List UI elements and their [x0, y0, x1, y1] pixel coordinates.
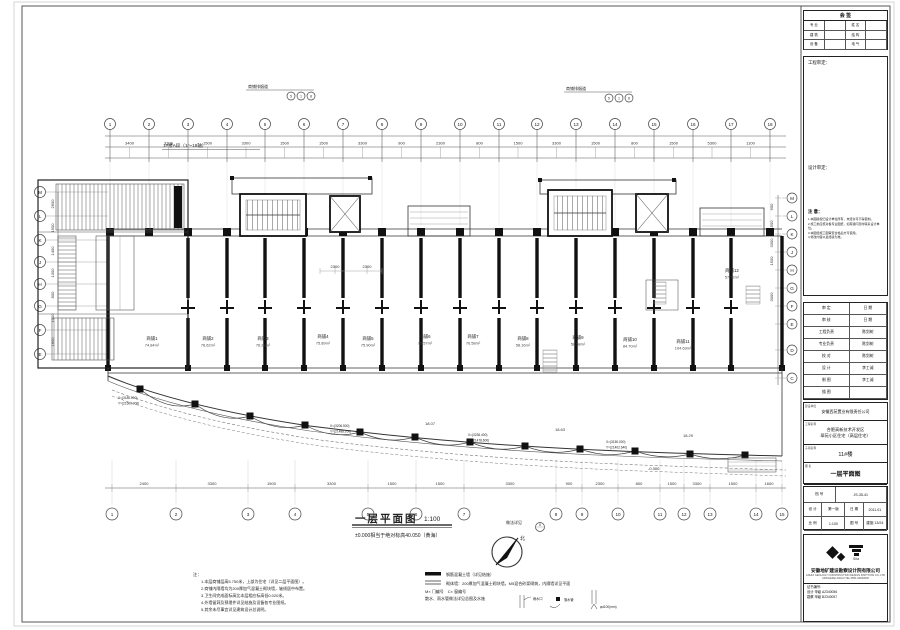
dim: 2300	[436, 141, 446, 146]
vent-label-right: 商铺排烟道	[566, 85, 586, 91]
role: 专业负责	[804, 339, 850, 350]
personnel-row: 专业负责陈剑树	[804, 339, 887, 351]
dim: 1500	[669, 141, 679, 146]
datum-note: ±0.000相当于绝对标高40.050（黄海）	[355, 532, 441, 539]
axis-label: 13	[707, 512, 713, 517]
vent-ref: 1	[300, 94, 302, 98]
number-table: 档 号JS-35-41 设 计第一版日 期2011.01 比 例1:100图 号…	[803, 486, 888, 530]
coord-y: Y=(21402.640)	[606, 446, 627, 450]
axis-label: 10	[615, 512, 621, 517]
vent-ref: 1	[618, 96, 620, 100]
dim: 3300	[242, 141, 252, 146]
axis-label: 2	[175, 512, 178, 517]
axis-label: 4	[294, 512, 297, 517]
axis-label: 12	[681, 512, 687, 517]
personnel-row: 校 对陈剑树	[804, 351, 887, 363]
role: 制 图	[804, 375, 850, 386]
scale-value: 1:100	[822, 517, 845, 530]
axis-label: J	[39, 260, 41, 265]
room-area: 76.58m²	[466, 341, 481, 346]
notice-title: 注 意：	[808, 209, 884, 215]
axis-label: 8	[555, 512, 558, 517]
drawing-sheet: 1 2 3 4 5 6 7 8 9 10 11 12 13 14 15 16 1…	[0, 0, 900, 630]
dim: 18.63	[555, 427, 566, 432]
sign-cell: 结 构	[846, 31, 867, 41]
approve-label-2: 设计审定：	[808, 165, 830, 171]
room-area: 58.58m²	[571, 342, 586, 347]
sign-table-title: 会 签	[804, 11, 887, 21]
axis-label: 3	[247, 512, 250, 517]
axis-label: 5	[264, 122, 267, 127]
axis-label: 2	[148, 122, 151, 127]
value	[850, 387, 887, 398]
project-line1: 合肥高新技术开发区	[827, 427, 865, 432]
room-area: 75.90m²	[361, 343, 376, 348]
subproject-cell: 子项名称11#楼	[804, 445, 887, 463]
room-name: 商铺2	[202, 335, 214, 342]
owner-label: 建设单位	[805, 404, 816, 408]
value: 陈剑树	[850, 351, 887, 362]
logo-tree-icon: Sita	[849, 545, 863, 561]
sign-cell	[866, 31, 887, 41]
room-area: 104.63m²	[675, 346, 692, 351]
room-name: 商铺10	[623, 336, 637, 343]
room-name: 商铺11	[676, 338, 690, 345]
legend-item: 散水、雨水管做法详见总图及水施	[425, 595, 485, 601]
project-cell: 工程名称 合肥高新技术开发区翠苑小区住宅（高层住宅）	[804, 421, 887, 445]
room-name: 商铺8	[517, 335, 529, 342]
notes-header: 注：	[193, 571, 201, 578]
value: 日 期	[850, 303, 887, 314]
legend-item: 钢筋混凝土墙（详见结施）	[446, 571, 494, 577]
role: 校 对	[804, 351, 850, 362]
axis-label: 7	[342, 122, 345, 127]
axis-label: 9	[581, 512, 584, 517]
project-label: 工程名称	[805, 422, 816, 426]
coord-x: X=(3236.400)	[468, 433, 487, 437]
notice-line: 1.本图版权归设计单位所有，未经许可不得复制。	[808, 217, 884, 222]
sign-cell: 姓 名	[846, 21, 867, 31]
design-date-row: 设 计第一版日 期2011.01	[804, 503, 887, 517]
axis-label: 12	[534, 122, 540, 127]
role: 描 图	[804, 387, 850, 398]
value: 日 期	[850, 315, 887, 326]
vent-ref: 8	[310, 94, 312, 98]
sign-cell	[825, 21, 846, 31]
axis-label: J	[791, 250, 793, 255]
vent-ref: 5	[290, 94, 292, 98]
sign-cell: 专 业	[804, 21, 825, 31]
value: 李工诚	[850, 375, 887, 386]
note-line: 1.本层商铺层高5.750米，上部为住宅（详见二层平面图）。	[201, 578, 306, 584]
value: 陈剑树	[850, 327, 887, 338]
approve-label-1: 工程审定：	[808, 60, 830, 66]
coord-x: X=(3180.000)	[118, 396, 137, 400]
room-name: 商铺9	[572, 334, 584, 341]
approval-box: 工程审定： 设计审定： 注 意： 1.本图版权归设计单位所有，未经许可不得复制。…	[803, 56, 888, 296]
axis-label: 10	[457, 122, 463, 127]
axis-label: G	[790, 286, 794, 291]
dim: 18.29	[683, 433, 694, 438]
legend-detail: φd100(mm)	[600, 605, 617, 609]
personnel-row: 制 图李工诚	[804, 375, 887, 387]
axis-label: E	[38, 352, 41, 357]
room-name: 商铺7	[467, 333, 479, 340]
axis-label: H	[38, 282, 41, 287]
value: 陈剑树	[850, 339, 887, 350]
value: 李工诚	[850, 363, 887, 374]
dim: 5300	[708, 141, 718, 146]
dim: 1500	[388, 481, 398, 486]
axis-label: 9	[420, 122, 423, 127]
axis-label: G	[38, 304, 42, 309]
note-line: 3.卫生间完成面标高比本层相应标高低0.020米。	[201, 592, 286, 598]
axis-label: 14	[612, 122, 618, 127]
axis-label: 11	[658, 512, 663, 517]
dim: 900	[398, 141, 405, 146]
dim: 1500	[267, 481, 277, 486]
dim: 2300	[331, 264, 341, 269]
plan-title: 一层平面图	[355, 513, 418, 525]
dim: 2300	[596, 481, 606, 486]
vent-label-left: 商铺排烟道	[248, 83, 268, 89]
room-name: 商铺4	[317, 333, 329, 340]
detail-ref-num: 5	[539, 523, 541, 527]
room-name: 商铺12	[725, 267, 739, 274]
dim: 3300	[693, 481, 703, 486]
dwg-no-label: 图 号	[845, 517, 863, 530]
dim: 1500	[50, 223, 55, 233]
axis-label: 14	[753, 512, 759, 517]
legend-detail: 落水管	[564, 597, 574, 602]
dim: 800	[636, 481, 643, 486]
legend-item: M× 门编号 C× 窗编号	[425, 588, 466, 594]
sign-cell: 建 筑	[804, 31, 825, 41]
subproject-label: 子项名称	[805, 446, 816, 450]
sign-cell	[825, 40, 846, 50]
floor-plan-canvas: 1 2 3 4 5 6 7 8 9 10 11 12 13 14 15 16 1…	[0, 0, 900, 630]
axis-label: 4	[226, 122, 229, 127]
certificates: 证书编号： 设计 甲级 A2340056 勘察 甲级 B2340057	[804, 583, 887, 601]
scale-number-row: 比 例1:100图 号建施 13/24	[804, 517, 887, 531]
design-version: 第一版	[822, 503, 845, 516]
dim: 18.07	[425, 421, 436, 426]
dim: 1500	[769, 256, 774, 266]
notice-block: 注 意： 1.本图版权归设计单位所有，未经许可不得复制。 2.施工前应核对各专业…	[808, 209, 884, 240]
subproject-name: 11#楼	[838, 450, 852, 458]
sign-cell	[866, 40, 887, 50]
title-block: 会 签 专 业姓 名 建 筑结 构 设 备电 气 工程审定： 设计审定： 注 意…	[803, 10, 888, 622]
room-area: 76.29m²	[256, 343, 271, 348]
cert-line: 勘察 甲级 B2340057	[807, 595, 884, 600]
dim: 1100	[746, 141, 755, 146]
coord-x: X=(3206.500)	[330, 424, 349, 428]
date-value: 2011.01	[864, 503, 887, 516]
legend-detail: 雨水口	[533, 596, 543, 601]
sign-cell	[825, 31, 846, 41]
note-line: 4.外墙留洞及预埋件详见结施及设备各专业图纸。	[201, 599, 288, 605]
owner-cell: 建设单位安徽西苑置业有限责任公司	[804, 403, 887, 421]
axis-label: E	[790, 322, 793, 327]
axis-label: 15	[779, 512, 785, 517]
dim: 3400	[125, 141, 135, 146]
room-area: 84.70m²	[623, 344, 638, 349]
section-label: 1#楼A段（1～18轴）	[163, 142, 206, 149]
dim: 1300	[50, 268, 55, 278]
dim: 2300	[363, 264, 373, 269]
sign-off-table: 会 签 专 业姓 名 建 筑结 构 设 备电 气	[803, 10, 888, 50]
axis-label: M	[38, 190, 42, 195]
dim: 1500	[514, 141, 524, 146]
dim: 1500	[668, 481, 678, 486]
design-label: 设 计	[804, 503, 822, 516]
coord-y: Y=(21488.200)	[330, 430, 351, 434]
logo-diamond-icon	[837, 552, 845, 560]
north-label: 北	[520, 535, 525, 542]
dim: 1500	[729, 481, 739, 486]
room-name: 商铺5	[362, 335, 374, 342]
dim: 2400	[140, 481, 150, 486]
logo-text: Sita	[853, 557, 859, 561]
role: 审 定	[804, 303, 850, 314]
room-area: 75.89m²	[316, 341, 331, 346]
axis-label: 16	[690, 122, 696, 127]
dim: 1500	[319, 141, 329, 146]
design-firm-block: Sita 安徽地矿建设勘察设计院有限公司 ANHUI GEOLOGY CONST…	[803, 534, 888, 622]
axis-label: L	[39, 214, 42, 219]
coord-y: Y=(21478.600)	[468, 439, 489, 443]
room-area: 76.62m²	[201, 343, 216, 348]
dim: 3300	[506, 481, 516, 486]
axis-label: 6	[303, 122, 306, 127]
axis-label: H	[790, 268, 793, 273]
drawing-name: 一层平面图	[830, 469, 860, 478]
axis-label: 15	[651, 122, 657, 127]
archive-row: 档 号JS-35-41	[804, 487, 887, 503]
dim: 3300	[552, 141, 562, 146]
room-area: 74.84m²	[145, 343, 160, 348]
personnel-table: 审 定日 期 审 核日 期 工程负责陈剑树 专业负责陈剑树 校 对陈剑树 设 计…	[803, 302, 888, 400]
plan-scale: 1:100	[424, 516, 441, 523]
axis-label: 1	[109, 122, 112, 127]
personnel-row: 审 核日 期	[804, 315, 887, 327]
date-label: 日 期	[845, 503, 863, 516]
axis-label: M	[790, 196, 794, 201]
dim: 2600	[50, 199, 55, 209]
axis-label: 18	[767, 122, 773, 127]
axis-label: F	[791, 304, 794, 309]
dim: 1500	[591, 141, 601, 146]
drawing-name-cell: 图 名一层平面图	[804, 463, 887, 485]
archive-label: 档 号	[804, 487, 836, 502]
level-mark: -0.300	[648, 466, 660, 471]
coord-y: Y=(21500.000)	[118, 402, 139, 406]
role: 设 计	[804, 363, 850, 374]
legend-item: 砌体墙：200厚加气混凝土砌块墙，M5混合砂浆砌筑，内隔墙详见平面	[446, 580, 570, 586]
axis-label: 7	[463, 512, 466, 517]
notice-line: 4.修改内容以最终版为准。	[808, 235, 884, 240]
project-line2: 翠苑小区住宅（高层住宅）	[820, 433, 870, 438]
vent-ref: 5	[608, 96, 610, 100]
dim: 800	[476, 141, 483, 146]
axis-label: 8	[381, 122, 384, 127]
personnel-row: 设 计李工诚	[804, 363, 887, 375]
room-name: 商铺6	[419, 333, 431, 340]
drawing-name-label: 图 名	[805, 464, 811, 468]
archive-no: JS-35-41	[836, 487, 887, 502]
note-line: 2.商铺内隔墙均为200厚加气混凝土砌块墙，轴线居中布置。	[201, 585, 307, 591]
personnel-row: 工程负责陈剑树	[804, 327, 887, 339]
dim: 3300	[208, 481, 218, 486]
coord-x: X=(3150.000)	[606, 440, 625, 444]
dim: 1600	[765, 481, 775, 486]
firm-address-2: ADD:HEFEI ANHUI TEL:0551-62820000	[804, 577, 887, 580]
owner-name: 安徽西苑置业有限责任公司	[822, 409, 870, 415]
dim: 3300	[769, 238, 774, 248]
dim: 3000	[769, 292, 774, 302]
dim: 1500	[280, 141, 290, 146]
axis-label: 11	[497, 122, 502, 127]
sign-cell: 电 气	[846, 40, 867, 50]
axis-label: F	[39, 328, 42, 333]
sign-cell: 设 备	[804, 40, 825, 50]
room-name: 商铺1	[146, 335, 158, 342]
room-name: 商铺3	[257, 335, 269, 342]
dim: 1400	[50, 246, 55, 256]
axis-label: 1	[111, 512, 114, 517]
dim: 600	[769, 203, 774, 210]
sign-cell	[866, 21, 887, 31]
project-info: 建设单位安徽西苑置业有限责任公司 工程名称 合肥高新技术开发区翠苑小区住宅（高层…	[803, 402, 888, 484]
dwg-no-value: 建施 13/24	[864, 517, 887, 530]
room-area: 58.16m²	[516, 343, 531, 348]
detail-ref-label: 做法详见	[506, 519, 522, 525]
dim: 3300	[327, 481, 337, 486]
scale-label: 比 例	[804, 517, 822, 530]
notice-line: 2.施工前应核对各专业图纸，如有疑问及时联系设计单位。	[808, 222, 884, 231]
role: 工程负责	[804, 327, 850, 338]
axis-label: 17	[728, 122, 734, 127]
dim: 1500	[436, 481, 446, 486]
vent-ref: 8	[628, 96, 630, 100]
room-area: 75.57m²	[418, 341, 433, 346]
dim: 900	[566, 481, 573, 486]
firm-logo: Sita	[804, 535, 887, 567]
role: 审 核	[804, 315, 850, 326]
room-area: 57.72m²	[725, 275, 740, 280]
dim: 800	[50, 291, 55, 298]
personnel-row: 描 图	[804, 387, 887, 399]
axis-label: L	[791, 214, 794, 219]
dim: 3300	[358, 141, 368, 146]
axis-label: 13	[573, 122, 579, 127]
axis-label: 3	[187, 122, 190, 127]
dim: 800	[631, 141, 638, 146]
personnel-row: 审 定日 期	[804, 303, 887, 315]
note-line: 5.其余未尽事宜详见建筑设计总说明。	[201, 606, 268, 612]
